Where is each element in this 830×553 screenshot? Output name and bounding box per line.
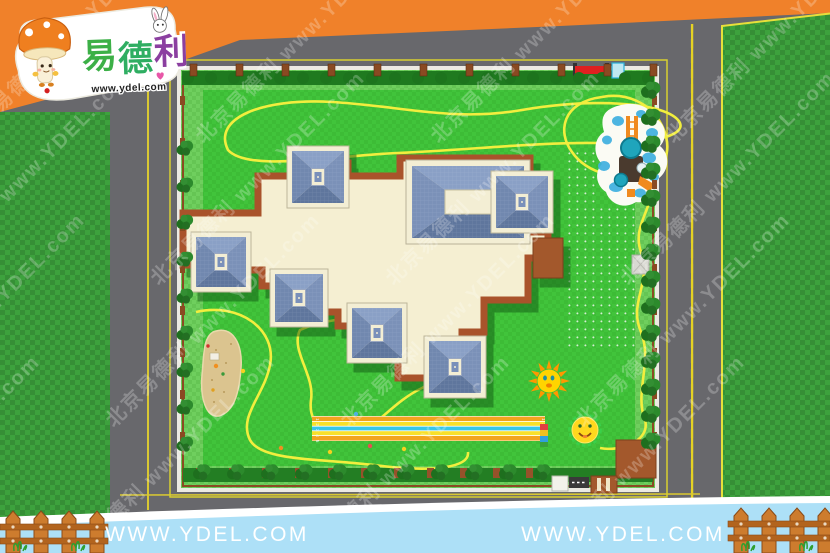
tree-icon [180,141,187,148]
tree-icon [646,217,654,225]
fence-post [558,64,565,76]
tower-roof [191,232,251,292]
guard-house [552,476,568,491]
kindergarten-site: 1 2 3 4 5 1 2 3 4 5 [176,63,680,493]
fence-post [328,64,335,76]
tree-icon [646,325,654,333]
tree-icon [180,437,187,444]
tree-icon [647,251,656,260]
tree-icon [646,109,654,117]
fence-picket [790,508,804,553]
tree-icon [647,89,656,98]
fence-nail [767,522,770,525]
tree-icon [646,82,654,90]
hedge-bumps [182,72,654,84]
tower-cap-dot [376,332,378,334]
tree-icon [182,407,190,415]
fence-rail [728,535,830,541]
fence-nail [739,522,742,525]
tree-icon [647,305,656,314]
fence-post [190,64,197,76]
tree-icon [182,370,190,378]
tree-icon [335,472,344,481]
tree-icon [182,185,190,193]
tree-icon [267,472,276,481]
tree-icon [182,333,190,341]
tree-icon [180,178,187,185]
tree-icon [182,222,190,230]
road-line-left [147,80,149,510]
tree-icon [646,190,654,198]
tower-cap-dot [521,201,523,203]
fence-nail [39,539,42,542]
hedge-bush [389,72,401,84]
tree-icon [503,464,511,472]
hedge-bush [481,72,493,84]
tree-icon [180,400,187,407]
smiley-flower-icon [570,415,601,446]
fence-post [526,468,533,478]
tree-icon [437,472,446,481]
tree-icon [301,472,310,481]
tree-icon [647,197,656,206]
tree-icon [182,259,190,267]
tree-icon [182,148,190,156]
tree-icon [199,472,208,481]
fence-post [652,180,657,189]
tree-icon [469,464,477,472]
tree-icon [180,363,187,370]
tree-icon [647,440,656,449]
hedge-bush [435,72,447,84]
tree-icon [505,472,514,481]
tree-icon [646,298,654,306]
hedge-bush [297,72,309,84]
fence-post [650,64,657,76]
brand-logo: 易德利 www.ydel.com [6,1,188,117]
footer-url-left: WWW.YDEL.COM [92,523,322,547]
footer-url-right: WWW.YDEL.COM [508,523,738,547]
tree-icon [647,116,656,125]
tree-icon [180,326,187,333]
tower-roof [424,336,486,398]
tree-icon [647,332,656,341]
tree-icon [537,464,545,472]
tree-icon [180,215,187,222]
tree-icon [182,444,190,452]
fence-nail [11,539,14,542]
brown-pad-right [533,238,563,278]
hedge-bush [527,72,539,84]
tree-icon [180,289,187,296]
fence-post [420,64,427,76]
fence-nail [795,522,798,525]
tower-roof [287,146,349,208]
tree-icon [646,433,654,441]
play-panel [540,424,548,447]
fence-post [512,64,519,76]
brand-url: www.ydel.com [90,82,166,96]
tree-icon [333,464,341,472]
fence-post [282,64,289,76]
fence-post [180,306,185,315]
fence-post [374,64,381,76]
track-lane-numbers-left: 1 2 3 4 5 [315,418,320,443]
tree-icon [539,472,548,481]
fence-picket [62,511,76,553]
tower-cap-dot [220,261,222,263]
tree-icon [197,464,205,472]
fence-post [180,390,185,399]
tree-icon [647,413,656,422]
tree-icon [646,163,654,171]
tree-icon [646,136,654,144]
tower-cap-dot [298,297,300,299]
tree-icon [646,352,654,360]
fence-nail [739,536,742,539]
tree-icon [646,406,654,414]
tree-icon [646,271,654,279]
hedge-bush [343,72,355,84]
grass-left [0,112,110,553]
tower-roof [491,171,553,233]
tree-icon [180,252,187,259]
tree-icon [367,464,375,472]
running-track: 1 2 3 4 5 1 2 3 4 5 [312,416,546,443]
tree-icon [647,170,656,179]
tree-icon [369,472,378,481]
sand-toy-table [210,353,219,360]
tree-icon [265,464,273,472]
fence-nail [67,539,70,542]
tree-icon [299,464,307,472]
fence-nail [11,525,14,528]
tree-icon [231,464,239,472]
fence-picket [818,508,830,553]
tree-icon [647,143,656,152]
tower-cap-dot [317,176,319,178]
tower-roof [347,303,407,363]
fence-nail [823,522,826,525]
tree-icon [471,472,480,481]
tower-cap-dot [454,366,456,368]
tree-icon [182,296,190,304]
hedge-bush [251,72,263,84]
fence-nail [795,536,798,539]
tree-icon [646,244,654,252]
gate-pillar-box [591,476,617,493]
tree-icon [403,472,412,481]
fence-picket [34,511,48,553]
tree-icon [435,464,443,472]
tree-icon [401,464,409,472]
tree-icon [647,386,656,395]
fence-post [466,64,473,76]
fence-rail [728,521,830,527]
tree-icon [233,472,242,481]
grass-right [722,13,830,520]
fence-post [236,64,243,76]
fence-nail [67,525,70,528]
fence-nail [39,525,42,528]
hedge-bush [205,72,217,84]
fence-nail [823,536,826,539]
aerial-site-plan: 1 2 3 4 5 1 2 3 4 5 [0,0,830,553]
tree-icon [646,379,654,387]
hedge-bush [573,72,585,84]
fence-post [493,468,500,478]
tower-roof [270,269,328,327]
fence-nail [767,536,770,539]
fence-post [604,64,611,76]
hedge-bush [619,72,631,84]
tree-icon [647,224,656,233]
fence-picket [762,508,776,553]
fence-post [180,348,185,357]
tree-icon [647,278,656,287]
tree-icon [647,359,656,368]
